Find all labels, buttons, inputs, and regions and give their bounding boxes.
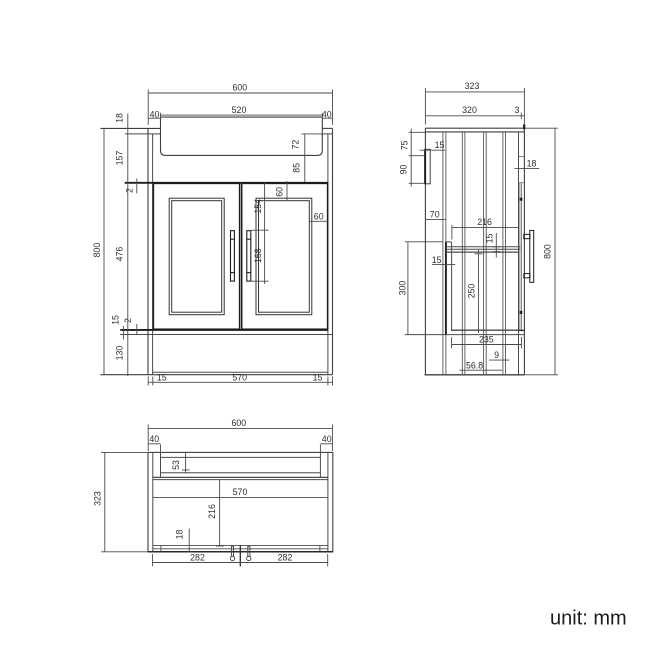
svg-text:15: 15 — [435, 140, 445, 150]
svg-text:300: 300 — [398, 281, 408, 296]
svg-text:15: 15 — [484, 234, 494, 244]
svg-text:40: 40 — [150, 109, 160, 119]
svg-text:70: 70 — [430, 210, 440, 220]
svg-text:72: 72 — [291, 140, 301, 150]
svg-text:75: 75 — [399, 140, 409, 150]
svg-text:250: 250 — [466, 284, 476, 299]
svg-text:40: 40 — [322, 434, 332, 444]
svg-text:323: 323 — [465, 81, 480, 91]
svg-text:60: 60 — [314, 211, 324, 221]
svg-text:15: 15 — [432, 255, 442, 265]
svg-text:3: 3 — [515, 105, 520, 115]
svg-text:18: 18 — [114, 113, 124, 123]
svg-text:2: 2 — [123, 318, 133, 323]
svg-text:40: 40 — [322, 109, 332, 119]
svg-text:15: 15 — [111, 315, 121, 325]
svg-text:323: 323 — [93, 491, 103, 506]
svg-text:18: 18 — [175, 530, 185, 540]
svg-text:15: 15 — [313, 372, 323, 382]
svg-text:15: 15 — [157, 372, 167, 382]
svg-text:570: 570 — [232, 372, 247, 382]
svg-text:800: 800 — [92, 243, 102, 258]
svg-text:476: 476 — [114, 247, 124, 262]
svg-text:216: 216 — [207, 504, 217, 519]
svg-text:235: 235 — [479, 334, 494, 344]
svg-text:320: 320 — [462, 105, 477, 115]
svg-text:40: 40 — [149, 434, 159, 444]
svg-text:60: 60 — [274, 187, 284, 197]
svg-text:56.8: 56.8 — [466, 360, 483, 370]
svg-text:2: 2 — [125, 188, 135, 193]
svg-text:53: 53 — [171, 460, 181, 470]
svg-text:570: 570 — [233, 487, 248, 497]
svg-text:168: 168 — [253, 248, 263, 263]
svg-text:154: 154 — [253, 199, 263, 214]
svg-text:800: 800 — [543, 244, 553, 259]
svg-text:90: 90 — [399, 165, 409, 175]
svg-text:600: 600 — [232, 82, 247, 92]
svg-text:216: 216 — [477, 217, 492, 227]
svg-text:18: 18 — [527, 158, 537, 168]
svg-text:520: 520 — [232, 105, 247, 115]
svg-text:282: 282 — [278, 553, 293, 563]
svg-text:9: 9 — [494, 350, 499, 360]
svg-text:600: 600 — [231, 418, 246, 428]
svg-text:157: 157 — [114, 151, 124, 166]
svg-text:unit: mm: unit: mm — [550, 608, 627, 630]
svg-text:282: 282 — [190, 553, 205, 563]
svg-text:85: 85 — [292, 163, 302, 173]
svg-text:130: 130 — [114, 346, 124, 361]
